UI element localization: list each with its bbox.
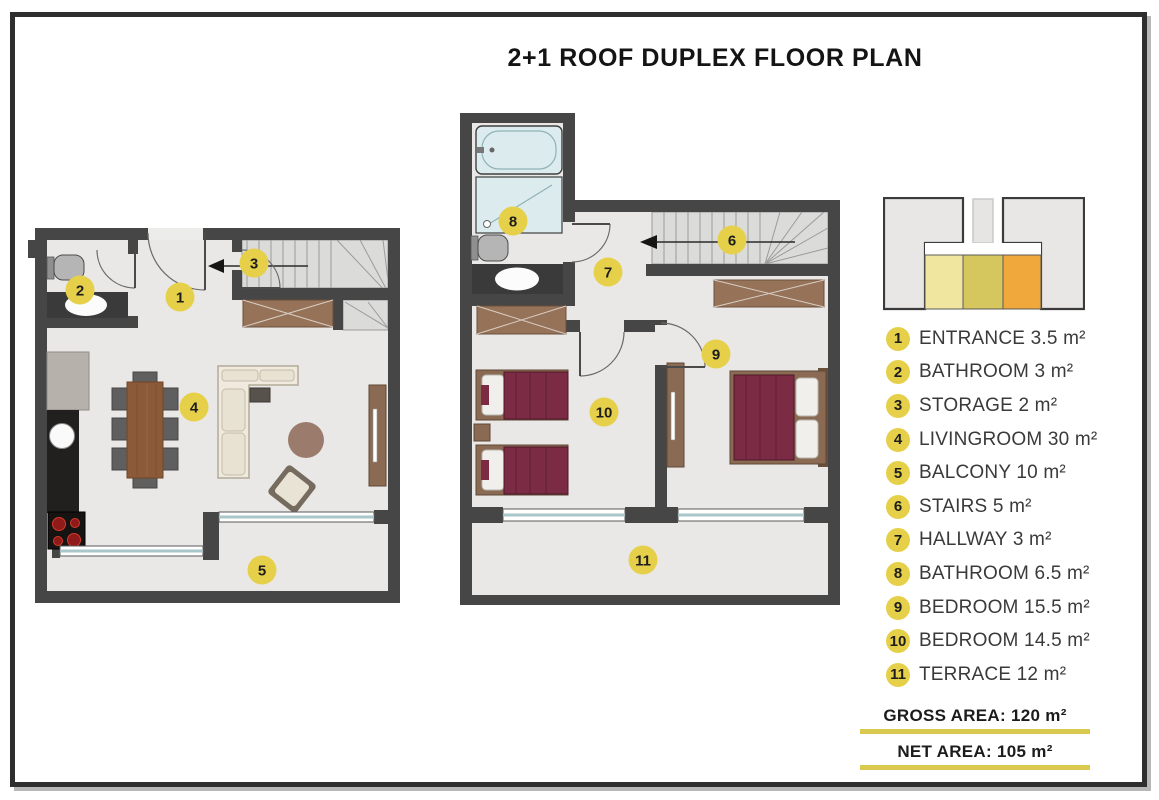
double-bed xyxy=(730,368,828,467)
legend-number-badge: 4 xyxy=(886,428,910,452)
room-marker-stairs: 6 xyxy=(718,226,747,255)
svg-text:1: 1 xyxy=(176,290,184,307)
room-marker-livingroom: 4 xyxy=(180,393,209,422)
chair xyxy=(112,388,127,410)
kitchen-sink xyxy=(50,424,75,449)
legend-number-badge: 7 xyxy=(886,528,910,552)
legend-number-badge: 8 xyxy=(886,562,910,586)
legend-item: 11 TERRACE 12 m² xyxy=(886,658,1097,692)
legend-label: BALCONY 10 m² xyxy=(919,462,1066,484)
room-marker-bedroom10: 10 xyxy=(590,398,619,427)
table-top xyxy=(127,382,163,478)
area-summary: GROSS AREA: 120 m² NET AREA: 105 m² xyxy=(860,706,1090,778)
upper-wardrobe-right xyxy=(714,280,824,307)
burner xyxy=(71,519,80,528)
legend-label: STORAGE 2 m² xyxy=(919,395,1057,417)
keyplan-unit-c xyxy=(1003,255,1041,309)
sofa-cushion xyxy=(260,370,294,381)
keyplan-unit-a xyxy=(925,255,963,309)
legend-label: STAIRS 5 m² xyxy=(919,496,1032,518)
chair xyxy=(112,448,127,470)
legend-item: 5 BALCONY 10 m² xyxy=(886,456,1097,490)
toilet-tank xyxy=(47,257,54,279)
legend-item: 6 STAIRS 5 m² xyxy=(886,490,1097,524)
legend-item: 2 BATHROOM 3 m² xyxy=(886,356,1097,390)
legend-number-badge: 11 xyxy=(886,663,910,687)
page-title: 2+1 ROOF DUPLEX FLOOR PLAN xyxy=(430,44,1000,73)
room-marker-hallway: 7 xyxy=(594,258,623,287)
bathtub xyxy=(476,126,562,174)
legend-label: BATHROOM 6.5 m² xyxy=(919,563,1090,585)
sofa-cushion xyxy=(222,389,245,431)
legend-number-badge: 2 xyxy=(886,360,910,384)
legend-item: 3 STORAGE 2 m² xyxy=(886,389,1097,423)
legend-label: BEDROOM 14.5 m² xyxy=(919,630,1090,652)
legend-number-badge: 5 xyxy=(886,461,910,485)
upper-wardrobe-left xyxy=(477,306,566,334)
legend-label: LIVINGROOM 30 m² xyxy=(919,429,1097,451)
cushion xyxy=(481,460,489,480)
lower-wardrobe xyxy=(243,300,333,327)
burner xyxy=(53,518,66,531)
legend-label: HALLWAY 3 m² xyxy=(919,529,1052,551)
legend-number-badge: 10 xyxy=(886,629,910,653)
burner xyxy=(54,537,63,546)
svg-text:7: 7 xyxy=(604,265,612,282)
svg-text:9: 9 xyxy=(712,347,720,364)
legend-item: 8 BATHROOM 6.5 m² xyxy=(886,557,1097,591)
svg-text:3: 3 xyxy=(250,256,258,273)
room-marker-storage: 3 xyxy=(240,249,269,278)
keyplan-core xyxy=(973,199,993,243)
tv-screen xyxy=(373,409,377,462)
room-marker-balcony: 5 xyxy=(248,556,277,585)
svg-text:5: 5 xyxy=(258,563,266,580)
svg-text:8: 8 xyxy=(509,214,517,231)
legend-number-badge: 9 xyxy=(886,596,910,620)
blanket xyxy=(504,447,568,494)
blanket xyxy=(504,372,568,419)
keyplan-unit-b xyxy=(963,255,1003,309)
room-marker-bathroom: 2 xyxy=(66,276,95,305)
room-legend: 1 ENTRANCE 3.5 m² 2 BATHROOM 3 m² 3 STOR… xyxy=(886,322,1097,692)
kitchen-cabinet xyxy=(47,352,89,410)
bathroom-sink xyxy=(495,268,539,291)
room-marker-entrance: 1 xyxy=(166,283,195,312)
round-rug xyxy=(288,422,324,458)
lower-floor-plan: 1 2 3 4 5 xyxy=(26,216,412,612)
blanket xyxy=(734,375,794,460)
legend-label: BEDROOM 15.5 m² xyxy=(919,597,1090,619)
sofa-cushion xyxy=(222,433,245,475)
chair xyxy=(163,418,178,440)
single-bed-2 xyxy=(476,445,568,495)
legend-label: BATHROOM 3 m² xyxy=(919,361,1073,383)
legend-label: ENTRANCE 3.5 m² xyxy=(919,328,1086,350)
gross-area-underline xyxy=(860,729,1090,734)
legend-item: 4 LIVINGROOM 30 m² xyxy=(886,423,1097,457)
room-marker-bedroom9: 9 xyxy=(702,340,731,369)
building-key-plan xyxy=(883,197,1085,313)
shower-drain xyxy=(484,221,491,228)
side-table xyxy=(250,388,270,402)
upper-floor-plan: 6 7 8 9 10 11 xyxy=(453,106,845,610)
chair xyxy=(163,448,178,470)
single-bed-1 xyxy=(476,370,568,420)
legend-item: 1 ENTRANCE 3.5 m² xyxy=(886,322,1097,356)
cushion xyxy=(481,385,489,405)
svg-text:4: 4 xyxy=(190,400,199,417)
chair xyxy=(163,388,178,410)
net-area-underline xyxy=(860,765,1090,770)
room-marker-bathroom-upper: 8 xyxy=(499,207,528,236)
legend-number-badge: 6 xyxy=(886,495,910,519)
legend-label: TERRACE 12 m² xyxy=(919,664,1066,686)
bedroom-tv-unit xyxy=(667,363,684,467)
legend-item: 7 HALLWAY 3 m² xyxy=(886,524,1097,558)
svg-text:6: 6 xyxy=(728,233,736,250)
nightstand xyxy=(474,424,490,441)
room-marker-terrace: 11 xyxy=(629,546,658,575)
tv-unit xyxy=(369,385,386,486)
pillow xyxy=(796,378,818,416)
tv-screen xyxy=(671,392,675,440)
legend-number-badge: 1 xyxy=(886,327,910,351)
burner xyxy=(68,534,81,547)
gross-area-text: GROSS AREA: 120 m² xyxy=(860,706,1090,726)
legend-item: 10 BEDROOM 14.5 m² xyxy=(886,624,1097,658)
legend-item: 9 BEDROOM 15.5 m² xyxy=(886,591,1097,625)
net-area-text: NET AREA: 105 m² xyxy=(860,742,1090,762)
toilet-bowl xyxy=(478,235,508,261)
sofa-cushion xyxy=(222,370,258,381)
floor-plan-sheet: 2+1 ROOF DUPLEX FLOOR PLAN xyxy=(0,0,1159,800)
svg-text:10: 10 xyxy=(596,405,613,422)
keyplan-walkway xyxy=(925,243,1041,255)
svg-text:11: 11 xyxy=(635,553,651,570)
pillow xyxy=(796,420,818,458)
bathtub-faucet xyxy=(477,147,484,153)
legend-number-badge: 3 xyxy=(886,394,910,418)
chair xyxy=(112,418,127,440)
svg-text:2: 2 xyxy=(76,283,84,300)
toilet-tank xyxy=(471,236,478,260)
